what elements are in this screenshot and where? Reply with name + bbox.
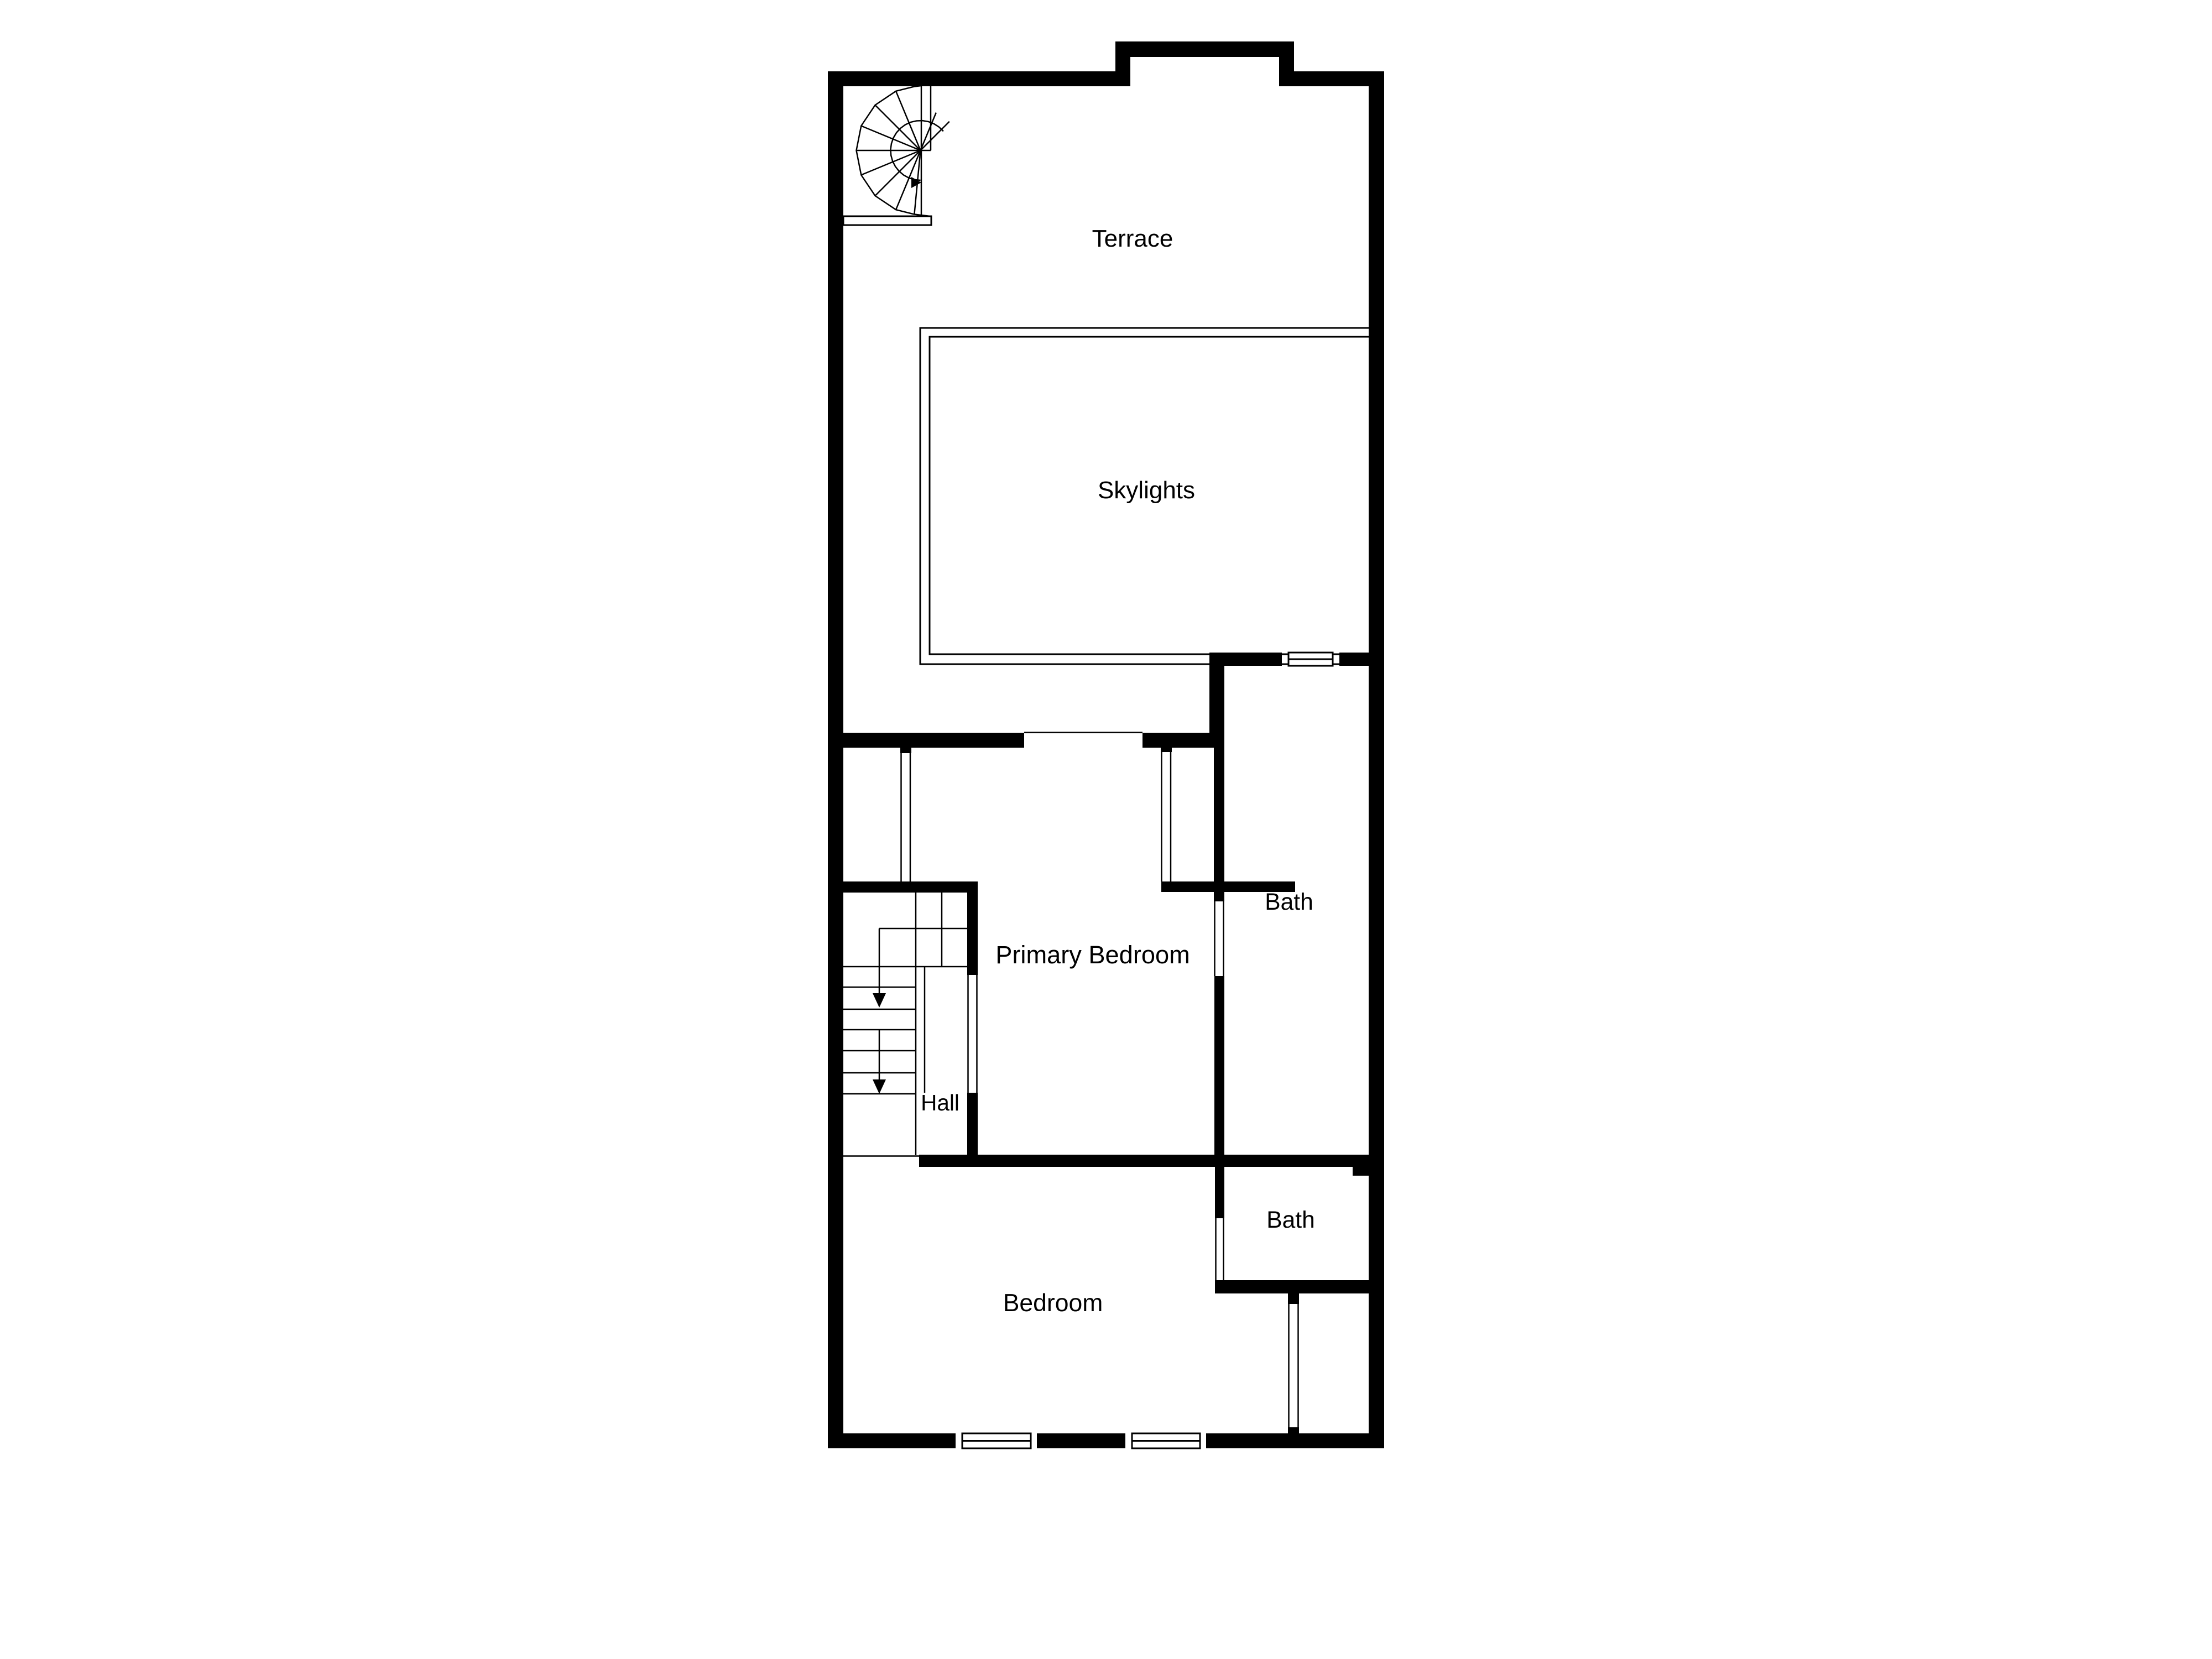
svg-text:Skylights: Skylights	[1098, 477, 1195, 504]
svg-text:Hall: Hall	[921, 1090, 959, 1115]
svg-text:Bath: Bath	[1265, 889, 1313, 915]
svg-text:Terrace: Terrace	[1092, 225, 1173, 252]
svg-text:Bedroom: Bedroom	[1003, 1290, 1103, 1317]
svg-text:Primary Bedroom: Primary Bedroom	[995, 941, 1190, 969]
svg-text:Bath: Bath	[1266, 1207, 1314, 1233]
